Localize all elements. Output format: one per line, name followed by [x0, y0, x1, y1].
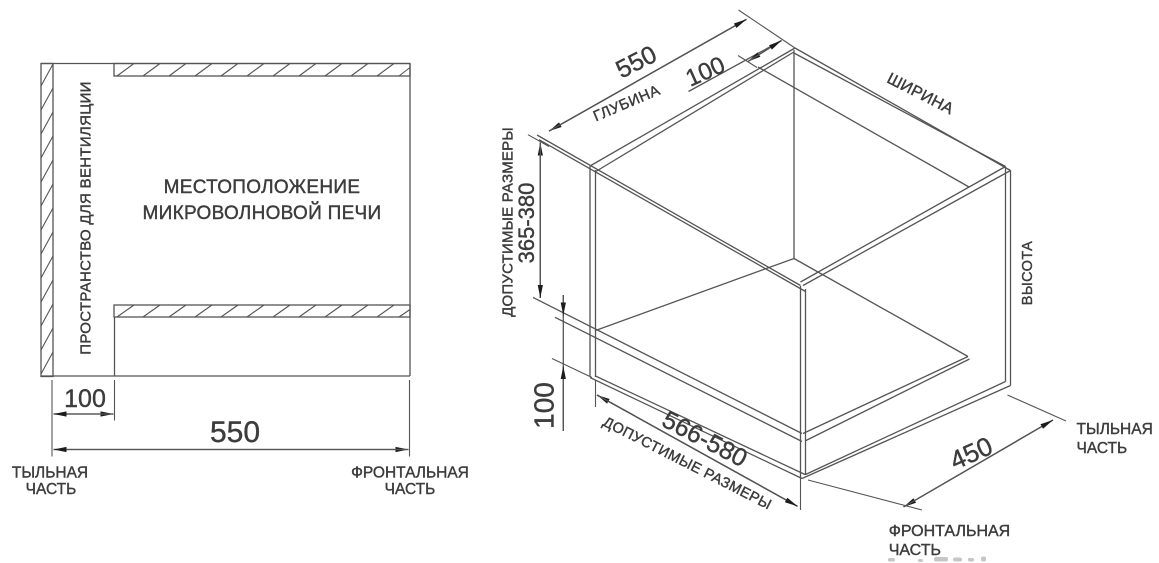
- svg-text:ЧАСТЬ: ЧАСТЬ: [26, 481, 77, 498]
- svg-text:ЧАСТЬ: ЧАСТЬ: [1077, 440, 1128, 457]
- svg-text:365-380: 365-380: [514, 183, 539, 264]
- svg-text:МИКРОВОЛНОВОЙ ПЕЧИ: МИКРОВОЛНОВОЙ ПЕЧИ: [143, 202, 382, 224]
- svg-text:550: 550: [210, 416, 260, 449]
- svg-text:ГЛУБИНА: ГЛУБИНА: [591, 82, 663, 125]
- svg-text:ШИРИНА: ШИРИНА: [884, 70, 956, 118]
- svg-text:550: 550: [611, 40, 661, 84]
- svg-text:ЧАСТЬ: ЧАСТЬ: [889, 542, 941, 559]
- svg-text:100: 100: [64, 385, 106, 413]
- svg-text:450: 450: [945, 431, 997, 476]
- svg-text:МЕСТОПОЛОЖЕНИЕ: МЕСТОПОЛОЖЕНИЕ: [164, 177, 361, 198]
- svg-text:100: 100: [528, 382, 559, 429]
- svg-text:ФРОНТАЛЬНАЯ: ФРОНТАЛЬНАЯ: [351, 465, 469, 482]
- svg-text:ПРОСТРАНСТВО ДЛЯ ВЕНТИЛЯЦИИ: ПРОСТРАНСТВО ДЛЯ ВЕНТИЛЯЦИИ: [77, 81, 94, 355]
- svg-text:100: 100: [682, 51, 730, 92]
- svg-text:ФРОНТАЛЬНАЯ: ФРОНТАЛЬНАЯ: [889, 523, 1011, 540]
- svg-text:ВЫСОТА: ВЫСОТА: [1020, 241, 1036, 305]
- svg-text:ЧАСТЬ: ЧАСТЬ: [385, 481, 436, 498]
- svg-text:ТЫЛЬНАЯ: ТЫЛЬНАЯ: [12, 465, 88, 482]
- svg-text:ТЫЛЬНАЯ: ТЫЛЬНАЯ: [1077, 421, 1153, 438]
